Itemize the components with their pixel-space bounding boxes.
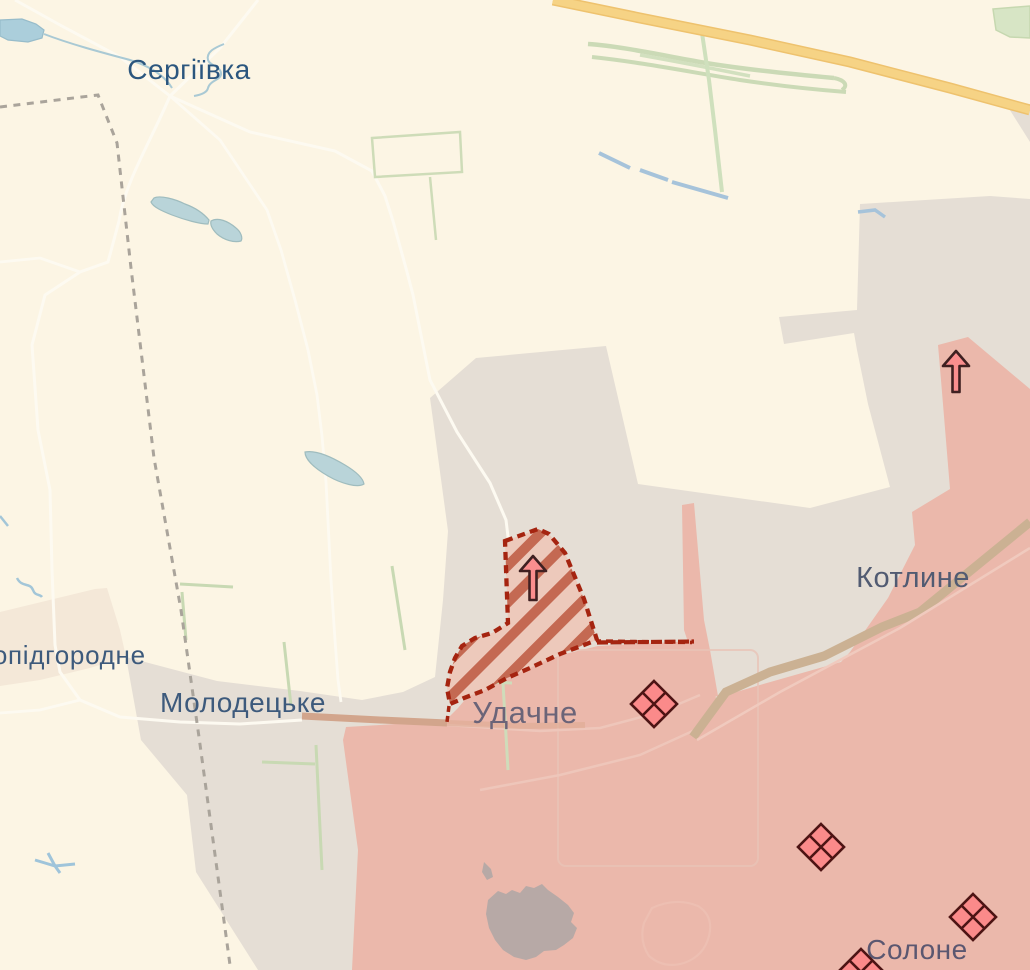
svg-text:Молодецьке: Молодецьке (160, 687, 326, 718)
svg-text:Солоне: Солоне (866, 934, 967, 965)
svg-text:Новопідгородне: Новопідгородне (0, 640, 146, 670)
svg-text:Сергіївка: Сергіївка (127, 54, 250, 85)
svg-text:Удачне: Удачне (472, 695, 577, 730)
svg-text:Котлине: Котлине (856, 562, 970, 594)
